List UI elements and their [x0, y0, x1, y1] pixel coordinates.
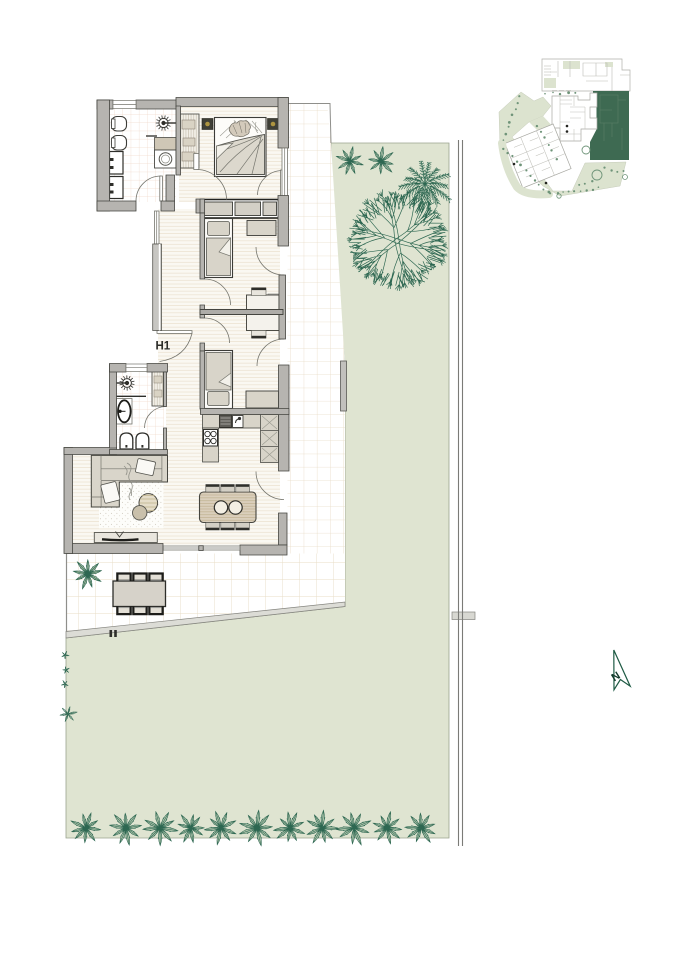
svg-text:H1: H1 [156, 341, 171, 353]
